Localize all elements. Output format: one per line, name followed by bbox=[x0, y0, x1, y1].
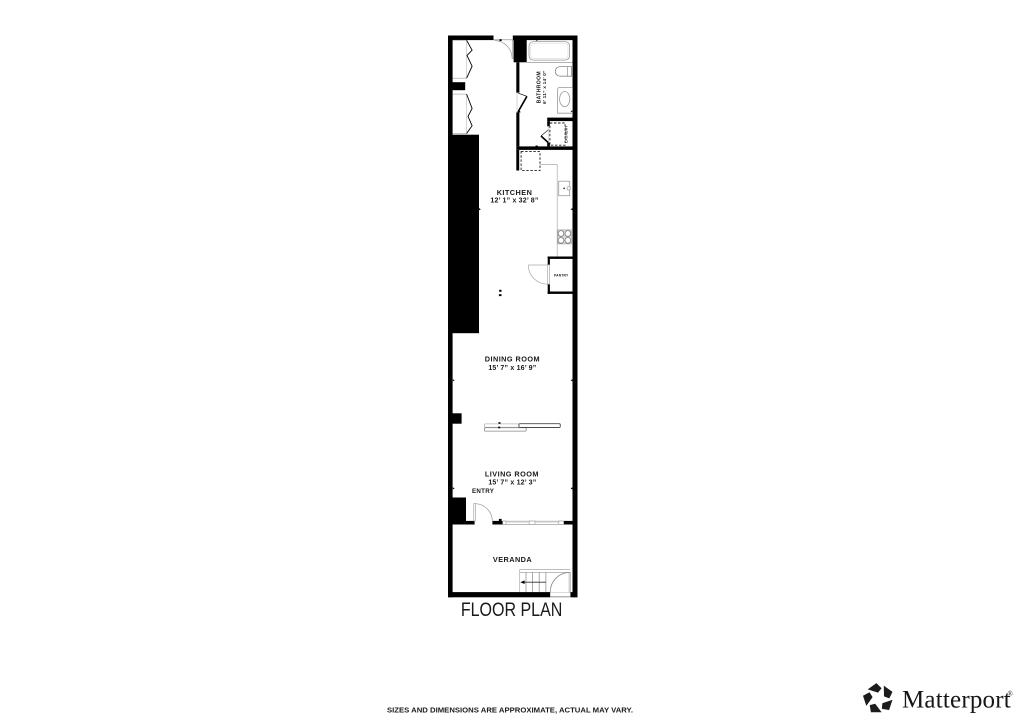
svg-text:15’ 7” x 12’ 3”: 15’ 7” x 12’ 3” bbox=[488, 480, 536, 487]
svg-text:12’ 1” x 32’ 8”: 12’ 1” x 32’ 8” bbox=[490, 198, 538, 205]
svg-text:Matterport: Matterport bbox=[902, 687, 1011, 714]
svg-text:DINING ROOM: DINING ROOM bbox=[485, 355, 540, 364]
svg-text:VERANDA: VERANDA bbox=[493, 555, 533, 564]
svg-text:LIVING ROOM: LIVING ROOM bbox=[485, 470, 539, 479]
svg-text:FLOOR PLAN: FLOOR PLAN bbox=[461, 599, 563, 621]
svg-text:PANTRY: PANTRY bbox=[554, 274, 569, 278]
svg-text:ENTRY: ENTRY bbox=[472, 488, 495, 495]
svg-text:15’ 7” x 16’ 9”: 15’ 7” x 16’ 9” bbox=[488, 365, 536, 372]
svg-text:BATHROOM: BATHROOM bbox=[536, 71, 542, 103]
svg-text:SIZES AND DIMENSIONS ARE APPRO: SIZES AND DIMENSIONS ARE APPROXIMATE, AC… bbox=[387, 707, 633, 714]
svg-text:®: ® bbox=[1008, 690, 1014, 698]
svg-text:LAUNDRY: LAUNDRY bbox=[565, 125, 569, 143]
svg-text:KITCHEN: KITCHEN bbox=[497, 188, 533, 197]
svg-text:6’ 11” x 14’ 0”: 6’ 11” x 14’ 0” bbox=[542, 70, 548, 104]
